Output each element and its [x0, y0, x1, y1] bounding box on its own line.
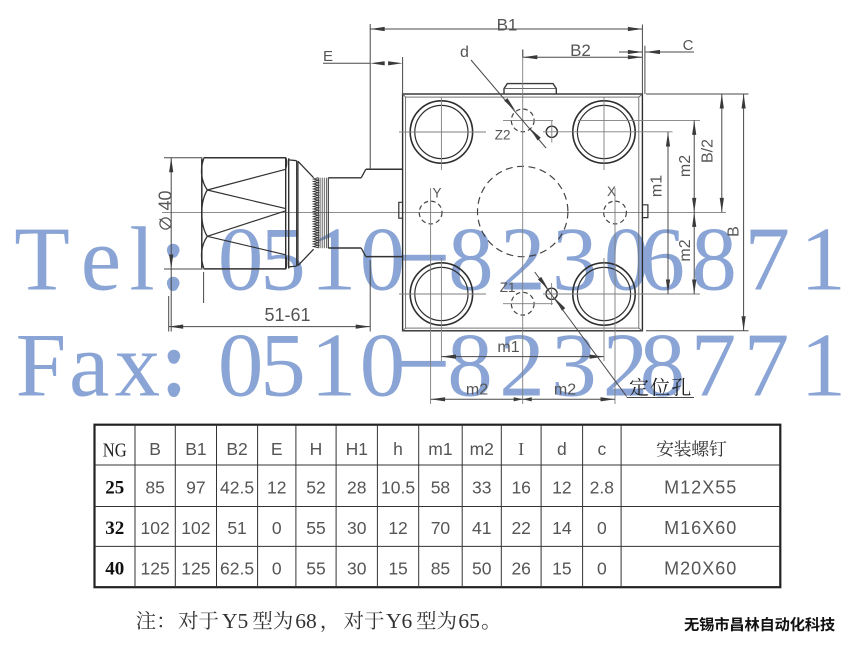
- svg-text:40: 40: [156, 190, 176, 210]
- svg-text:5: 5: [260, 209, 306, 310]
- svg-text:m1: m1: [497, 339, 519, 356]
- svg-text:12: 12: [552, 477, 571, 497]
- svg-text:125: 125: [181, 558, 210, 578]
- svg-text:51-61: 51-61: [264, 305, 310, 325]
- svg-text:M20X60: M20X60: [664, 558, 737, 578]
- svg-text:1: 1: [800, 209, 846, 310]
- svg-text:d: d: [557, 439, 567, 459]
- svg-text:30: 30: [347, 518, 367, 538]
- svg-text:H1: H1: [346, 439, 368, 459]
- svg-text:m2: m2: [466, 382, 488, 399]
- svg-text:B: B: [149, 439, 161, 459]
- svg-text:C: C: [683, 37, 694, 54]
- svg-text:h: h: [393, 439, 403, 459]
- svg-text:H: H: [310, 439, 323, 459]
- svg-text:25: 25: [105, 477, 124, 498]
- svg-text:m2: m2: [677, 155, 694, 177]
- svg-text:m1: m1: [649, 175, 666, 197]
- svg-text:68: 68: [295, 609, 317, 633]
- svg-text:3: 3: [551, 315, 597, 416]
- svg-text:X: X: [607, 184, 616, 199]
- svg-text:NG: NG: [103, 440, 127, 462]
- svg-text:125: 125: [141, 558, 170, 578]
- svg-text:E: E: [271, 439, 283, 459]
- svg-text:I: I: [518, 439, 524, 459]
- svg-text:a: a: [69, 315, 109, 416]
- svg-text:65: 65: [458, 609, 480, 633]
- svg-text:e: e: [81, 209, 121, 310]
- svg-text:55: 55: [306, 518, 325, 538]
- svg-text:85: 85: [431, 558, 450, 578]
- svg-text:33: 33: [472, 477, 491, 497]
- svg-text:B2: B2: [226, 439, 247, 459]
- svg-text:2: 2: [499, 315, 545, 416]
- svg-text:T: T: [14, 209, 70, 310]
- svg-text:B/2: B/2: [700, 139, 717, 163]
- svg-text:16: 16: [511, 477, 530, 497]
- svg-text:7: 7: [745, 209, 791, 310]
- svg-text:7: 7: [744, 315, 790, 416]
- svg-text:28: 28: [347, 477, 366, 497]
- svg-text:0: 0: [218, 315, 264, 416]
- svg-text:5: 5: [260, 315, 306, 416]
- svg-text:10.5: 10.5: [381, 477, 415, 497]
- svg-text:E: E: [323, 48, 333, 65]
- svg-text:102: 102: [181, 518, 210, 538]
- svg-text:m2: m2: [470, 439, 494, 459]
- svg-text::: :: [161, 209, 186, 310]
- svg-text:1: 1: [800, 315, 846, 416]
- svg-text:97: 97: [186, 477, 205, 497]
- svg-text:Y5: Y5: [222, 609, 248, 633]
- svg-text:14: 14: [552, 518, 572, 538]
- svg-text:58: 58: [431, 477, 450, 497]
- svg-text:41: 41: [472, 518, 491, 538]
- svg-text:1: 1: [311, 209, 357, 310]
- svg-text:55: 55: [306, 558, 325, 578]
- svg-text:B1: B1: [497, 16, 518, 35]
- svg-text:7: 7: [691, 315, 737, 416]
- svg-text:15: 15: [552, 558, 571, 578]
- svg-text:22: 22: [511, 518, 530, 538]
- svg-text:c: c: [597, 439, 606, 459]
- svg-text:8: 8: [447, 315, 493, 416]
- svg-text:M16X60: M16X60: [664, 518, 737, 538]
- svg-text:50: 50: [472, 558, 492, 578]
- svg-text:62.5: 62.5: [220, 558, 254, 578]
- svg-text:M12X55: M12X55: [664, 477, 737, 497]
- svg-text:102: 102: [141, 518, 170, 538]
- svg-text:70: 70: [431, 518, 451, 538]
- svg-text:0: 0: [597, 518, 607, 538]
- svg-text:0: 0: [218, 209, 264, 310]
- svg-text:B: B: [726, 226, 743, 237]
- svg-text:0: 0: [272, 558, 282, 578]
- svg-text:1: 1: [311, 315, 357, 416]
- svg-text:12: 12: [267, 477, 286, 497]
- svg-text:x: x: [115, 315, 161, 416]
- svg-text:2.8: 2.8: [590, 477, 614, 497]
- svg-text:m1: m1: [428, 439, 452, 459]
- svg-text:l: l: [129, 209, 154, 310]
- svg-text:32: 32: [105, 518, 124, 539]
- svg-text:m2: m2: [677, 239, 694, 261]
- svg-text:Y: Y: [432, 186, 441, 201]
- svg-text:Y6: Y6: [386, 609, 413, 633]
- svg-text:30: 30: [347, 558, 367, 578]
- svg-text:8: 8: [640, 315, 686, 416]
- svg-text:52: 52: [306, 477, 325, 497]
- svg-text:15: 15: [388, 558, 407, 578]
- svg-text:m2: m2: [554, 382, 576, 399]
- svg-text:85: 85: [145, 477, 164, 497]
- svg-text:51: 51: [227, 518, 246, 538]
- svg-text:0: 0: [272, 518, 282, 538]
- svg-text::: :: [161, 315, 186, 416]
- svg-text:40: 40: [105, 558, 124, 579]
- svg-text:Z2: Z2: [495, 128, 511, 143]
- svg-text:12: 12: [388, 518, 407, 538]
- svg-text:42.5: 42.5: [220, 477, 254, 497]
- svg-text:d: d: [460, 44, 469, 61]
- svg-text:Z1: Z1: [500, 280, 516, 295]
- svg-text:26: 26: [511, 558, 530, 578]
- svg-text:0: 0: [597, 558, 607, 578]
- svg-text:B1: B1: [185, 439, 206, 459]
- svg-text:B2: B2: [570, 41, 591, 60]
- svg-text:F: F: [16, 315, 67, 416]
